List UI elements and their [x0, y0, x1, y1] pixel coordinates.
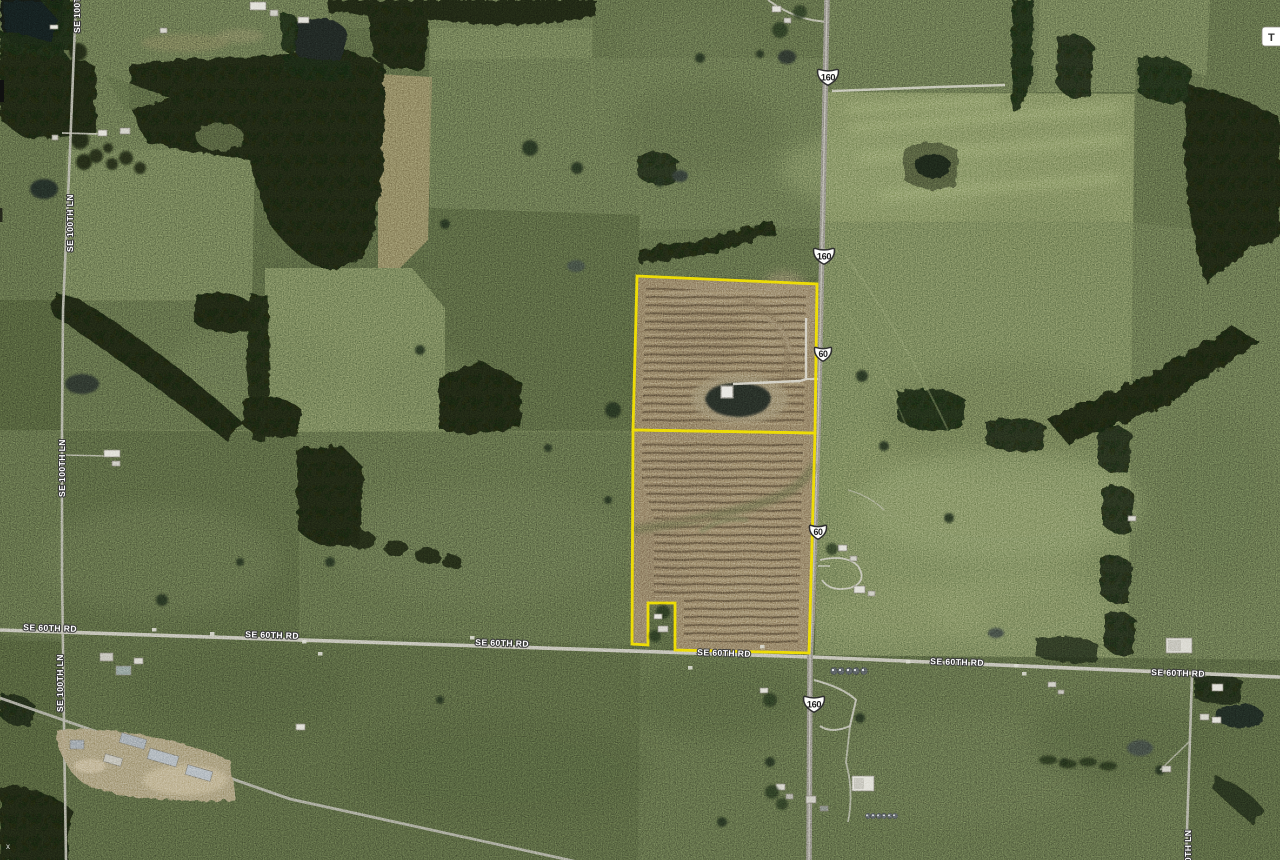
svg-text:160: 160 [807, 699, 821, 709]
svg-text:x: x [6, 842, 10, 851]
svg-text:SE 60TH RD: SE 60TH RD [23, 622, 77, 634]
svg-text:SE 100TH LN: SE 100TH LN [65, 194, 75, 252]
svg-text:SE 60TH RD: SE 60TH RD [475, 637, 529, 649]
svg-text:SE 100TH LN: SE 100TH LN [57, 439, 67, 497]
svg-text:160: 160 [821, 72, 835, 82]
svg-text:T: T [1268, 32, 1275, 44]
svg-text:160: 160 [817, 251, 831, 261]
svg-text:SE 60TH RD: SE 60TH RD [1151, 667, 1205, 679]
svg-text:SE 100TH LN: SE 100TH LN [55, 654, 65, 712]
svg-text:60: 60 [814, 527, 823, 537]
svg-text:SE 60TH RD: SE 60TH RD [697, 647, 751, 659]
svg-text:SE 60TH RD: SE 60TH RD [930, 656, 984, 668]
svg-text:SE 100TH: SE 100TH [72, 0, 82, 33]
svg-text:SE 110TH LN: SE 110TH LN [1183, 830, 1193, 860]
svg-text:SE 60TH RD: SE 60TH RD [245, 629, 299, 641]
svg-text:60: 60 [819, 349, 828, 359]
